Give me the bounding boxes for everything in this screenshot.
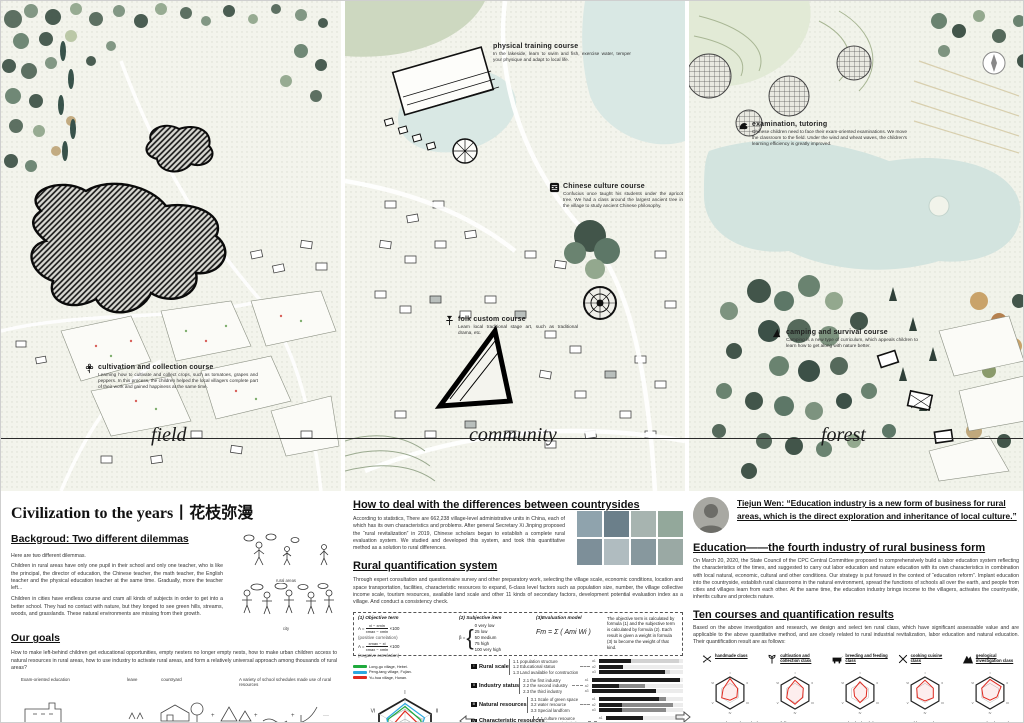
svg-text:VI: VI: [841, 681, 844, 685]
bar-row: a3: [592, 708, 683, 714]
model-label: (3)Evaluation model: [536, 616, 602, 622]
sub-factor-label: 3.3 Special landform: [531, 708, 579, 714]
factor-category-tree: IRural scale1.1 population structure1.2 …: [471, 659, 683, 723]
photo-thumbnail: [631, 511, 656, 537]
annotation-title: physical training course: [493, 43, 631, 50]
course-label: handmade class: [715, 653, 748, 658]
annotation-title: folk custom course: [458, 316, 578, 323]
svg-text:III: III: [811, 701, 814, 705]
legend-item: Yu-hua village, Hunan.: [353, 676, 412, 680]
subjective-item-block: (2) Subjective item β ={ 0 very low25 lo…: [459, 616, 531, 652]
annotation-title: cultivation and collection course: [98, 364, 258, 371]
annotation-title: Chinese culture course: [563, 183, 683, 190]
annotation-body: Learning how to cultivate and collect cr…: [98, 372, 258, 391]
svg-text:IV: IV: [728, 711, 731, 715]
bar-segment: [592, 684, 619, 688]
annotation-body: In the lakeside, learn to swim and fish,…: [493, 51, 631, 63]
subjective-scale-list: 0 very low25 low50 medium75 high100 very…: [475, 623, 501, 653]
svg-text:III: III: [941, 701, 944, 705]
dilemma-sketches: rural areas city: [229, 533, 343, 629]
svg-text:V: V: [711, 701, 713, 705]
course-card: cooking cuisine classIIIIIIIVVVI: [897, 653, 954, 715]
forest-map-illustration: [689, 1, 1024, 491]
city-sketch-label: city: [229, 626, 343, 631]
bar-row: a1: [585, 678, 683, 684]
differences-heading: How to deal with the differences between…: [353, 499, 683, 511]
bar-row: a2: [592, 664, 683, 670]
course-radar-chart: IIIIIIIVVVI: [898, 669, 952, 715]
svg-text:III: III: [1006, 701, 1009, 705]
photo-grid: [577, 511, 683, 565]
svg-text:V: V: [972, 701, 974, 705]
svg-text:VI: VI: [972, 681, 975, 685]
annotation-camping-course: camping and survival course Camping is a…: [786, 329, 918, 349]
courses-body: Based on the above investigation and res…: [693, 625, 1019, 647]
svg-text:II: II: [436, 708, 439, 714]
bar-segment: [606, 716, 643, 720]
annotation-body: Confucius once taught his students under…: [563, 191, 683, 210]
formula-explanation: The objective term is calculated by form…: [607, 616, 678, 652]
category-name: Rural scale: [479, 664, 509, 670]
goals-label-exam: Exam-oriented education: [21, 677, 70, 682]
goals-heading: Our goals: [11, 632, 343, 644]
scissors-icon: [701, 653, 713, 665]
leader-dashes: [580, 704, 590, 705]
svg-text:V: V: [907, 701, 909, 705]
course-label: cultivation and collection class: [780, 653, 823, 664]
radar-legend: Long-gu village, Hebei.Peng-tang village…: [353, 665, 412, 682]
community-map-illustration: [345, 1, 685, 491]
svg-text:IV: IV: [793, 711, 796, 715]
map-panel-field: cultivation and collection course Learni…: [1, 1, 341, 491]
legend-swatch: [353, 676, 367, 679]
annotation-body: Learn local traditional stage art, such …: [458, 324, 578, 336]
trigram-seal-icon: [549, 182, 560, 193]
annotation-culture-course: Chinese culture course Confucius once ta…: [563, 183, 683, 210]
course-radar-chart: IIIIIIIVVVI: [963, 669, 1017, 715]
leader-dashes: [572, 685, 582, 686]
svg-text:I: I: [404, 690, 405, 696]
presentation-board: cultivation and collection course Learni…: [0, 0, 1024, 723]
photo-thumbnail: [577, 539, 602, 565]
photo-thumbnail: [604, 511, 629, 537]
svg-text:IV: IV: [859, 711, 862, 715]
photo-thumbnail: [658, 539, 683, 565]
course-label: breeding and feeding class: [845, 653, 888, 664]
scarecrow-icon: [444, 315, 455, 326]
column-courses: Tiejun Wen: “Education industry is a new…: [693, 491, 1019, 723]
formula-box: (1) Objective term A = xi − xminxmax − x…: [353, 612, 683, 656]
category-row: IVCharacteristic resources4.1 culture re…: [471, 716, 683, 723]
background-paragraph-2: Children in rural areas have only one pu…: [11, 563, 223, 592]
annotation-title: examination, tutoring: [752, 121, 907, 128]
annotation-exam-course: examination, tutoring Chinese children n…: [752, 121, 907, 148]
svg-text:I: I: [860, 671, 861, 675]
goals-separator-2: +: [254, 713, 258, 719]
course-radar-chart: IIIIIIIVVVI: [768, 669, 822, 715]
education-heading: Education——the fourth industry of rural …: [693, 542, 1019, 554]
arrow-right-icon: [675, 711, 691, 723]
sub-factor-label: 2.2 the second industry: [523, 683, 570, 689]
goals-label-variety: A variety of school schedules made use o…: [239, 677, 339, 687]
category-name: Natural resources: [479, 702, 527, 708]
bar-row: a1: [592, 659, 683, 665]
sub-factor-label: 2.3 the third industry: [523, 689, 570, 695]
category-numeral-badge: III: [471, 702, 477, 707]
bar-segment: [599, 697, 660, 701]
pig-icon: [831, 653, 843, 665]
svg-text:IV: IV: [989, 711, 992, 715]
bar-segment: [592, 678, 681, 682]
annotation-body: Chinese children need to face their exam…: [752, 129, 907, 148]
subjective-scale-row: 100 very high: [475, 647, 501, 653]
bar-row: a3: [592, 670, 683, 676]
panel-label-field: field: [151, 424, 187, 447]
differences-body: According to statistics, There are 662,2…: [353, 516, 565, 552]
tiejun-wen-avatar: [693, 497, 729, 533]
svg-text:VI: VI: [906, 681, 909, 685]
category-numeral-badge: II: [471, 683, 477, 688]
portrait-silhouette: [693, 497, 729, 533]
svg-text:V: V: [776, 701, 778, 705]
bar-row: a2: [592, 702, 683, 708]
leader-dashes: [580, 666, 590, 667]
column-introduction: Civilization to the years丨花枝弥漫 Backgroud…: [11, 491, 343, 723]
svg-text:VI: VI: [776, 681, 779, 685]
category-row: IIINatural resources3.1 Scale of green s…: [471, 697, 683, 714]
goals-label-leave: leave: [127, 677, 138, 682]
background-paragraph-3: Children in cities have endless course a…: [11, 596, 223, 618]
rural-sketch: [229, 533, 343, 573]
compass: [983, 52, 1005, 74]
village-radar-chart: IIIIIIIVVVI: [353, 685, 461, 723]
annotation-body: Camping is a new type of curriculum, whi…: [786, 337, 918, 349]
goals-body: How to make left-behind children get edu…: [11, 650, 337, 672]
svg-text:II: II: [942, 681, 944, 685]
category-numeral-badge: IV: [471, 719, 477, 723]
map-panel-community: physical training course In the lakeside…: [345, 1, 685, 491]
category-row: IIIndustry status2.1 the first industry2…: [471, 678, 683, 695]
course-label: cooking cuisine class: [911, 653, 954, 664]
tent-icon: [772, 328, 783, 339]
panel-label-community: community: [469, 424, 557, 447]
course-radar-chart: IIIIIIIVVVI: [833, 669, 887, 715]
svg-text:III: III: [876, 701, 879, 705]
photo-thumbnail: [658, 511, 683, 537]
crossed-cutlery-icon: [897, 653, 909, 665]
board-title: Civilization to the years丨花枝弥漫: [11, 499, 343, 523]
bar-segment: [599, 703, 623, 707]
course-label: geological investigation class: [976, 653, 1019, 664]
photo-thumbnail: [577, 511, 602, 537]
svg-text:IV: IV: [924, 711, 927, 715]
photo-thumbnail: [631, 539, 656, 565]
bar-row: a2: [585, 683, 683, 689]
objective-label: (1) Objective term: [358, 616, 454, 622]
svg-text:II: II: [1007, 681, 1009, 685]
course-radar-chart: IIIIIIIVVVI: [703, 669, 757, 715]
lake-island: [929, 196, 949, 216]
sub-factor-label: 1.3 Land available for construction: [513, 670, 578, 676]
bar-segment: [599, 670, 665, 674]
education-body: On March 20, 2020, the State Council of …: [693, 558, 1019, 602]
goals-separator-1: +: [211, 713, 215, 719]
objective-term-block: (1) Objective term A = xi − xminxmax − x…: [358, 616, 454, 652]
flower-icon: [84, 363, 95, 374]
tiejun-wen-quote: Tiejun Wen: “Education industry is a new…: [737, 497, 1019, 533]
category-numeral-badge: I: [471, 664, 477, 669]
examination-icon: [738, 120, 749, 131]
map-panel-forest: examination, tutoring Chinese children n…: [689, 1, 1024, 491]
city-sketch: [229, 583, 343, 621]
legend-item: Peng-tang village, Fujian.: [353, 670, 412, 674]
bar-row: a3: [585, 689, 683, 695]
courses-grid: handmade classIIIIIIIVVVIcultivation and…: [693, 653, 1019, 723]
column-quantification: How to deal with the differences between…: [353, 491, 683, 723]
annotation-title: camping and survival course: [786, 329, 918, 336]
bar-segment: [592, 689, 656, 693]
bar-segment: [599, 708, 623, 712]
photo-thumbnail: [604, 539, 629, 565]
evaluation-chart-band: Long-gu village, Hebei.Peng-tang village…: [353, 659, 683, 723]
svg-text:II: II: [811, 681, 813, 685]
annotation-folk-course: folk custom course Learn local tradition…: [458, 316, 578, 336]
circular-stage: [584, 287, 616, 319]
bar-segment: [599, 659, 631, 663]
goals-separator-3: +: [291, 713, 295, 719]
svg-text:II: II: [746, 681, 748, 685]
svg-text:VI: VI: [371, 708, 376, 714]
plant-icon: [766, 653, 778, 665]
legend-swatch: [353, 665, 367, 668]
svg-text:I: I: [729, 671, 730, 675]
course-card: handmade classIIIIIIIVVVI: [701, 653, 758, 715]
background-paragraph-1: Here are two different dilemmas.: [11, 553, 223, 560]
quote-row: Tiejun Wen: “Education industry is a new…: [693, 497, 1019, 533]
svg-text:V: V: [842, 701, 844, 705]
goals-diagram: Exam-oriented education leave countryard…: [11, 675, 341, 723]
svg-text:I: I: [794, 671, 795, 675]
goals-label-countryside: countryard: [161, 677, 182, 682]
field-map-illustration: [1, 1, 341, 491]
svg-text:I: I: [925, 671, 926, 675]
course-card: geological investigation classIIIIIIIVVV…: [962, 653, 1019, 715]
svg-text:VI: VI: [711, 681, 714, 685]
subjective-label: (2) Subjective item: [459, 616, 501, 622]
annotation-cultivation-course: cultivation and collection course Learni…: [98, 364, 258, 391]
category-name: Industry status: [479, 683, 519, 689]
category-row: IRural scale1.1 population structure1.2 …: [471, 659, 683, 676]
model-formula: Fm = Σ ( Ami Wi ): [536, 628, 602, 637]
goals-separator-4: ···: [323, 713, 329, 719]
annotation-training-course: physical training course In the lakeside…: [493, 43, 631, 63]
bar-row: a1: [592, 697, 683, 703]
course-card: cultivation and collection classIIIIIIIV…: [766, 653, 823, 715]
svg-text:III: III: [746, 701, 749, 705]
svg-text:I: I: [990, 671, 991, 675]
panel-label-forest: forest: [821, 424, 866, 447]
bar-segment: [599, 665, 623, 669]
goals-doodles: +++···: [11, 687, 341, 723]
courses-heading: Ten courses and quantification results: [693, 609, 1019, 621]
leader-dashes: [588, 721, 597, 722]
evaluation-model-block: (3)Evaluation model Fm = Σ ( Ami Wi ): [536, 616, 602, 652]
bar-row: a1: [599, 716, 683, 722]
course-card: breeding and feeding classIIIIIIIVVVI: [831, 653, 888, 715]
mountain-icon: [962, 653, 974, 665]
quantification-body: Through expert consultation and question…: [353, 577, 683, 606]
svg-text:II: II: [876, 681, 878, 685]
legend-swatch: [353, 671, 367, 674]
legend-item: Long-gu village, Hebei.: [353, 665, 412, 669]
